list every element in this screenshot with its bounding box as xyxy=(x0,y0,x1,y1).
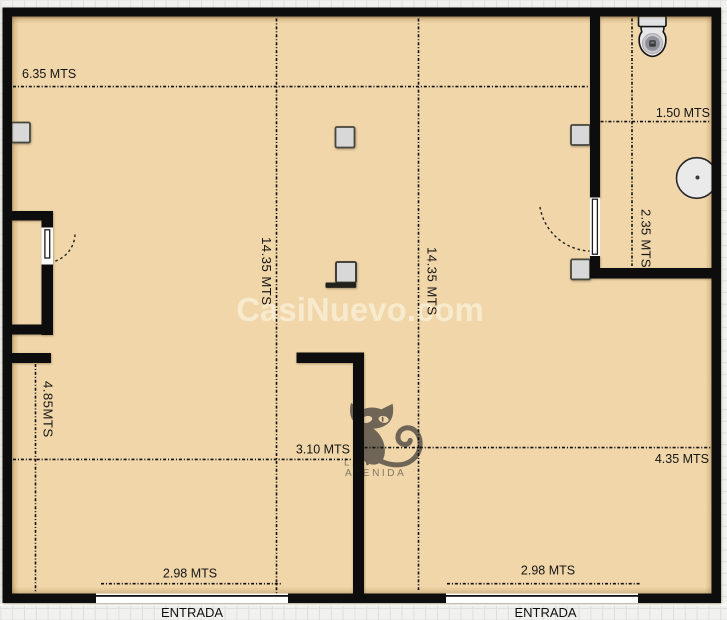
svg-text:ENTRADA: ENTRADA xyxy=(514,605,576,620)
svg-text:2.98 MTS: 2.98 MTS xyxy=(163,567,217,581)
svg-text:2.98 MTS: 2.98 MTS xyxy=(521,564,575,578)
svg-text:4.85MTS: 4.85MTS xyxy=(41,381,56,438)
svg-text:3.10 MTS: 3.10 MTS xyxy=(296,443,350,457)
svg-text:14.35 MTS: 14.35 MTS xyxy=(425,247,440,316)
svg-text:1.50 MTS: 1.50 MTS xyxy=(656,106,710,120)
svg-text:ENTRADA: ENTRADA xyxy=(161,605,223,620)
svg-text:2.35 MTS: 2.35 MTS xyxy=(639,209,654,268)
svg-text:14.35 MTS: 14.35 MTS xyxy=(259,237,274,306)
svg-text:6.35 MTS: 6.35 MTS xyxy=(22,67,76,81)
svg-text:4.35 MTS: 4.35 MTS xyxy=(655,452,709,466)
